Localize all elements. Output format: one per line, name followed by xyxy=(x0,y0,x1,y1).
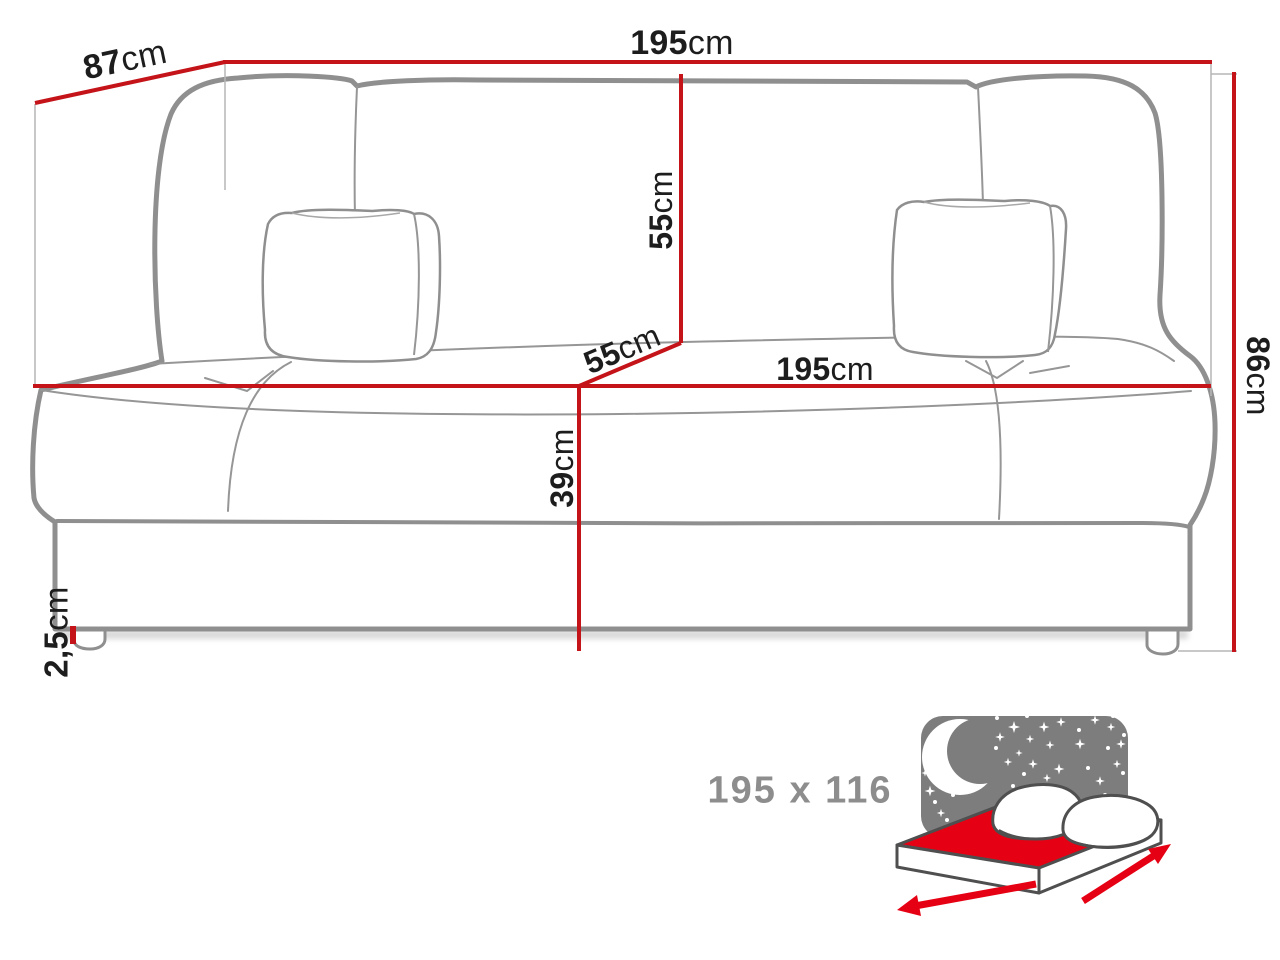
sofa-dimension-diagram: 87cm 195cm 55cm 55cm 195cm 39cm 86cm 2,5… xyxy=(0,0,1280,960)
label-seat-height: 39cm xyxy=(546,428,578,507)
sleeping-area-label: 195 x 116 xyxy=(708,770,893,813)
sofa-leg-right xyxy=(1147,630,1178,654)
leg-height-value: 2,5 xyxy=(38,631,75,678)
label-seat-width: 195cm xyxy=(776,353,874,385)
pillow-right xyxy=(892,200,1066,358)
label-leg-height: 2,5cm xyxy=(40,586,73,677)
diagram-artwork xyxy=(0,0,1280,960)
backrest-height-unit: cm xyxy=(643,170,679,213)
backrest-height-value: 55 xyxy=(643,214,679,250)
width-top-unit: cm xyxy=(688,24,734,62)
pillow-left xyxy=(263,210,440,362)
seat-height-unit: cm xyxy=(544,428,580,471)
seat-height-value: 39 xyxy=(544,472,580,508)
bed-pillows xyxy=(993,785,1158,848)
total-height-value: 86 xyxy=(1240,336,1276,372)
total-height-unit: cm xyxy=(1240,372,1276,415)
width-top-value: 195 xyxy=(630,24,688,62)
leg-height-unit: cm xyxy=(38,586,75,631)
label-width-top: 195cm xyxy=(630,26,734,60)
seat-width-value: 195 xyxy=(776,351,830,387)
label-total-height: 86cm xyxy=(1242,336,1274,415)
seat-width-unit: cm xyxy=(831,351,874,387)
bed-width-arrow xyxy=(897,884,1036,916)
sofa-bed-icon xyxy=(897,710,1171,916)
label-backrest-height: 55cm xyxy=(645,170,677,249)
